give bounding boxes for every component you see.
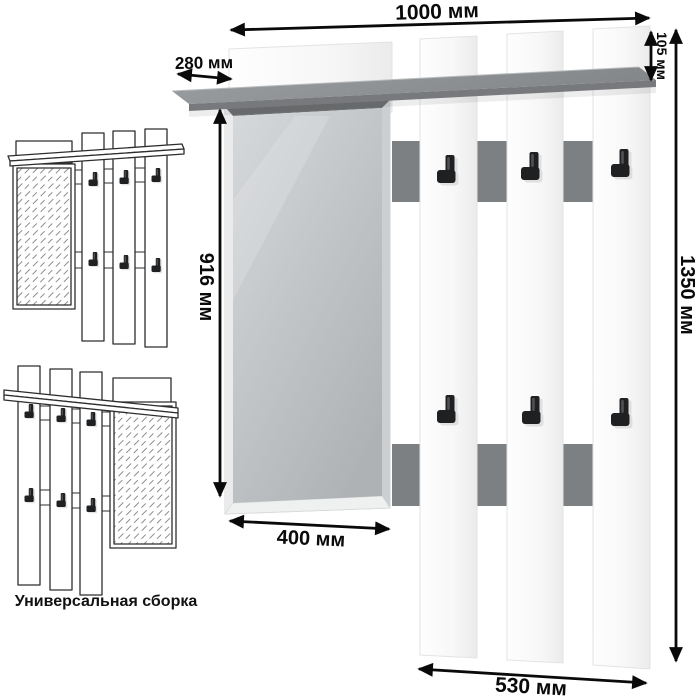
- main-rendering: [172, 26, 656, 669]
- slat-panel-2: [507, 31, 563, 663]
- dim-label-mirror-height: 916 мм: [196, 253, 216, 322]
- sketch-slat: [113, 131, 135, 344]
- dim-arrow-shelf-depth: [178, 74, 231, 79]
- sketch-slat: [82, 133, 104, 341]
- slat-panel-1: [420, 36, 477, 658]
- dim-label-total-width: 1000 мм: [395, 0, 479, 24]
- slat-panel-3: [593, 26, 650, 669]
- product-dimension-diagram: 1000 мм 280 мм 105 мм 916 мм 1350 мм 400…: [0, 0, 700, 700]
- dim-label-shelf-offset: 105 мм: [655, 32, 669, 80]
- sketch-mirror-glass: [114, 406, 172, 544]
- mirror-glass: [233, 108, 382, 503]
- mirror-bevel-left: [225, 107, 233, 514]
- sketch-mirror-glass: [17, 168, 71, 305]
- dim-label-hook-section-width: 530 мм: [494, 675, 567, 700]
- dim-label-total-height: 1350 мм: [677, 255, 697, 335]
- sketch-mirror-back-tab: [113, 378, 171, 404]
- mirror: [225, 100, 390, 514]
- mirror-bevel-right: [382, 100, 390, 508]
- dim-label-shelf-depth: 280 мм: [175, 54, 234, 72]
- sketch-slat: [145, 129, 167, 347]
- universal-assembly-caption: Универсальная сборка: [15, 594, 198, 610]
- dim-label-mirror-width: 400 мм: [276, 528, 345, 551]
- assembly-sketch-mirror-right: [4, 366, 178, 595]
- assembly-sketch-mirror-left: [8, 129, 184, 347]
